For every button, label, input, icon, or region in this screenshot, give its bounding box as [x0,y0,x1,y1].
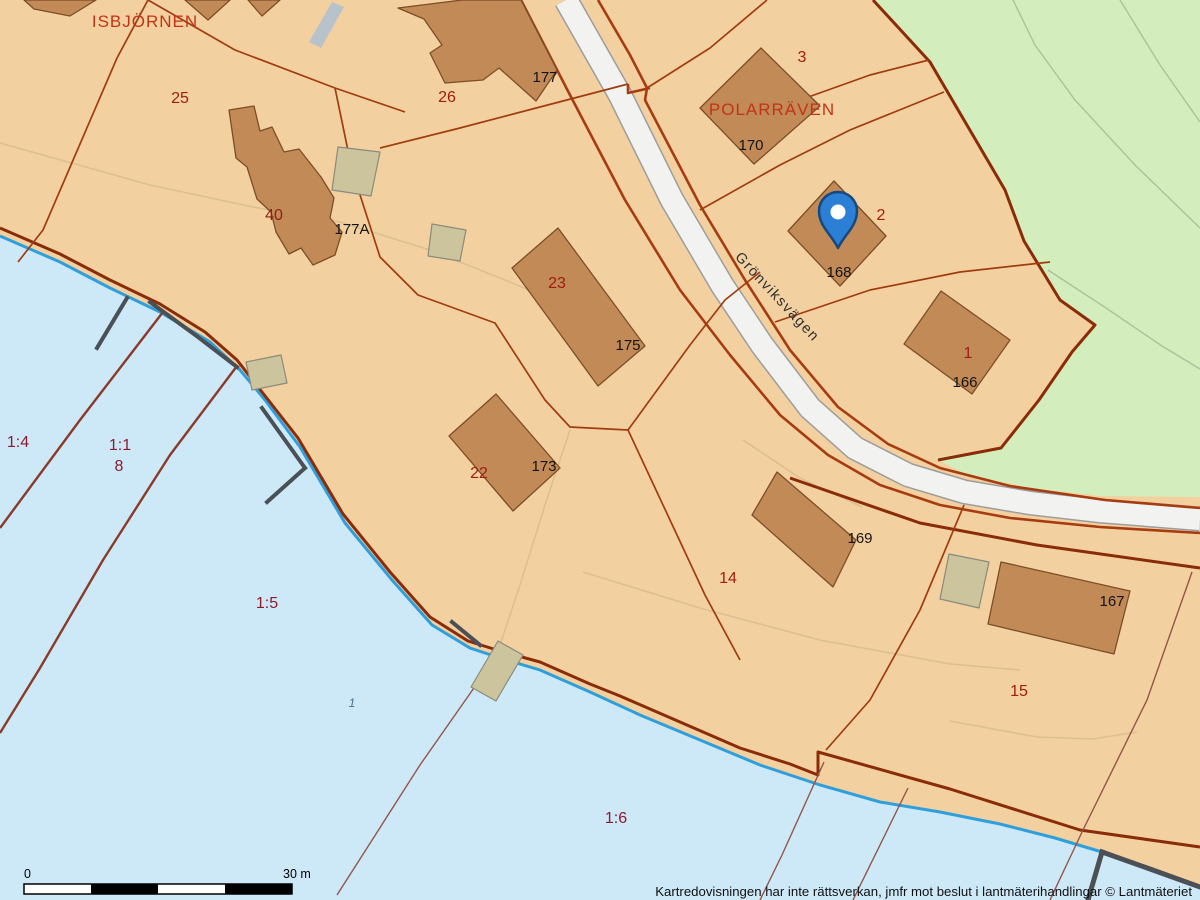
parcel-label-23: 23 [548,275,566,292]
water-parcel-1-1: 1:1 [109,437,131,454]
house-number-177a: 177A [334,221,369,238]
parcel-label-14: 14 [719,570,737,587]
parcel-label-40: 40 [265,207,283,224]
house-number-175: 175 [615,337,640,354]
parcel-label-3: 3 [798,49,807,66]
parcel-label-25: 25 [171,90,189,107]
outbuilding [428,224,466,261]
attribution-text: Kartredovisningen har inte rättsverkan, … [655,884,1192,899]
house-number-177: 177 [532,69,557,86]
parcel-label-26: 26 [438,89,456,106]
house-number-166: 166 [952,374,977,391]
block-label-isbjornen: ISBJÖRNEN [92,12,198,31]
water-parcel-1-6: 1:6 [605,810,627,827]
house-number-170: 170 [738,137,763,154]
outbuilding [246,355,287,390]
water-parcel-8: 8 [115,458,124,475]
cadastral-map-canvas[interactable]: ISBJÖRNEN POLARRÄVEN 25 26 40 23 22 3 2 … [0,0,1200,900]
water-label-1: 1 [349,696,356,710]
scale-start-label: 0 [24,867,31,881]
house-number-169: 169 [847,530,872,547]
house-number-168: 168 [826,264,851,281]
block-label-polarraven: POLARRÄVEN [709,100,835,119]
parcel-label-15: 15 [1010,683,1028,700]
parcel-label-22: 22 [470,465,488,482]
parcel-label-1: 1 [964,345,973,362]
water-parcel-1-4: 1:4 [7,434,29,451]
house-number-173: 173 [531,458,556,475]
scale-end-label: 30 m [283,867,311,881]
outbuilding [332,147,380,196]
map-svg: ISBJÖRNEN POLARRÄVEN 25 26 40 23 22 3 2 … [0,0,1200,900]
house-number-167: 167 [1099,593,1124,610]
parcel-label-2: 2 [877,207,886,224]
water-parcel-1-5: 1:5 [256,595,278,612]
